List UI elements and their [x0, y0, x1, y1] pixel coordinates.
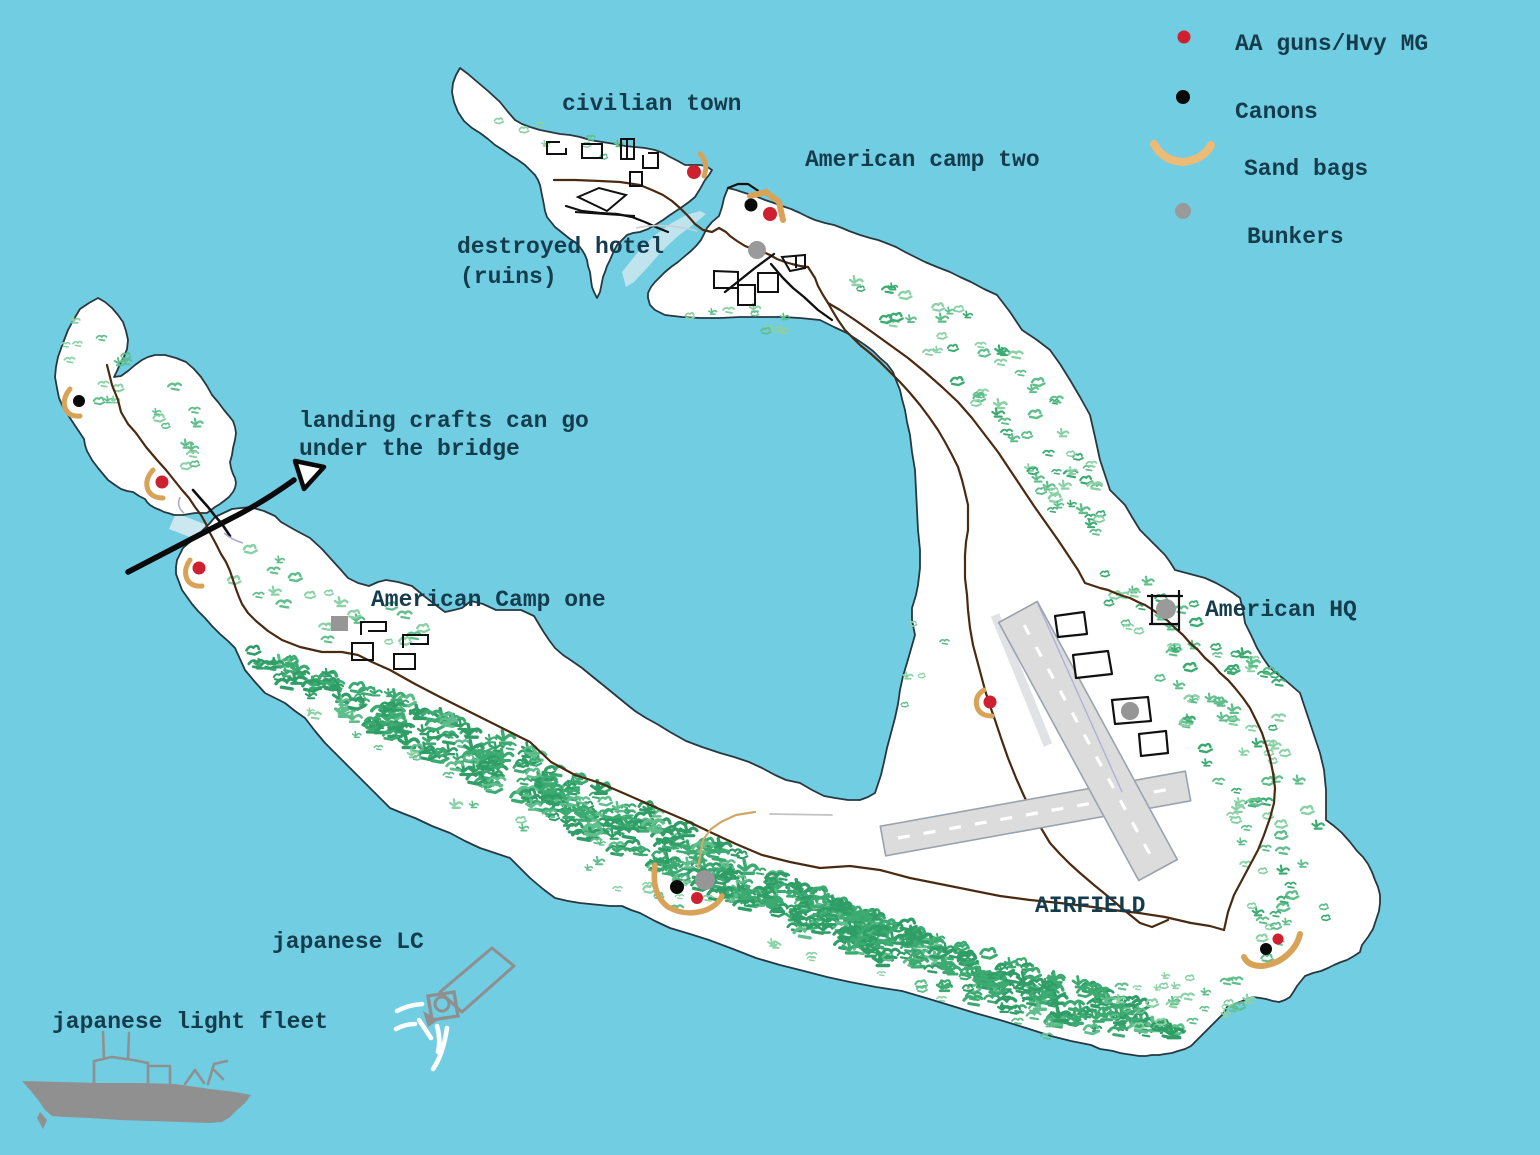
svg-text:American HQ: American HQ [1205, 597, 1357, 623]
svg-text:(ruins): (ruins) [460, 264, 557, 290]
svg-text:japanese light fleet: japanese light fleet [52, 1009, 328, 1035]
svg-text:Bunkers: Bunkers [1247, 224, 1344, 250]
svg-text:AIRFIELD: AIRFIELD [1035, 893, 1145, 919]
svg-text:japanese LC: japanese LC [272, 929, 424, 955]
svg-text:AA guns/Hvy MG: AA guns/Hvy MG [1235, 31, 1428, 57]
svg-text:civilian town: civilian town [562, 91, 741, 117]
svg-text:American Camp one: American Camp one [371, 587, 606, 613]
svg-text:American camp two: American camp two [805, 147, 1040, 173]
svg-text:under the bridge: under the bridge [299, 436, 520, 462]
svg-text:landing crafts can go: landing crafts can go [299, 408, 589, 434]
svg-text:Canons: Canons [1235, 99, 1318, 125]
svg-text:destroyed hotel: destroyed hotel [457, 234, 664, 260]
svg-text:Sand bags: Sand bags [1244, 156, 1368, 182]
